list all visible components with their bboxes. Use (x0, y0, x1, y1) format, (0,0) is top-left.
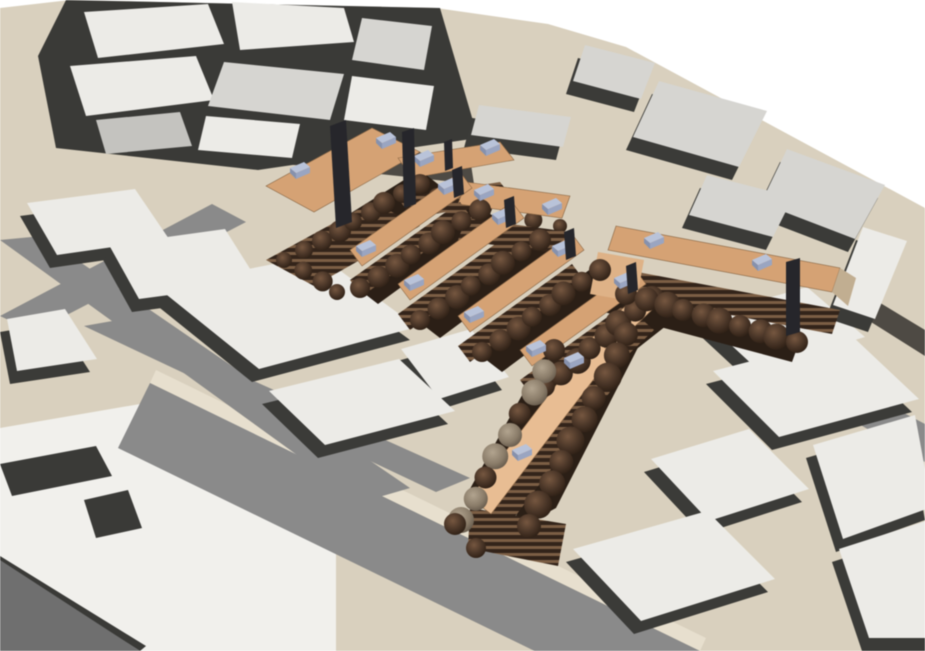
tree (522, 307, 542, 327)
tree (509, 403, 531, 425)
tree (312, 231, 332, 251)
tree (729, 315, 751, 337)
tree (410, 310, 430, 330)
tree (469, 199, 491, 221)
tree (482, 443, 508, 469)
stair-post-3 (786, 258, 800, 336)
tree (572, 272, 592, 292)
urban-massing-model (0, 0, 925, 651)
tree (491, 251, 515, 275)
tree (475, 467, 497, 489)
stair-post-5 (504, 196, 516, 228)
tree (464, 487, 488, 511)
rendering-canvas (0, 0, 925, 651)
cluster-roof-2 (232, 2, 354, 50)
tree (543, 339, 565, 361)
tree (589, 259, 611, 281)
tree (672, 299, 694, 321)
stair-post-7 (626, 262, 638, 294)
tree (466, 538, 486, 558)
stair-post-6 (564, 228, 576, 260)
tree (763, 324, 789, 350)
tree (522, 380, 548, 406)
tree (401, 245, 421, 265)
tree (511, 241, 531, 261)
tree (517, 514, 541, 538)
tree (444, 513, 466, 535)
tree (294, 262, 312, 280)
stair-post-8 (444, 139, 453, 171)
tree (313, 271, 333, 291)
tree (472, 342, 492, 362)
tree (551, 281, 575, 305)
tree (431, 220, 455, 244)
stair-post-2 (402, 128, 416, 208)
tree (498, 423, 522, 447)
tree (594, 363, 622, 391)
tree (295, 241, 313, 259)
tree (329, 284, 345, 300)
tree (451, 211, 471, 231)
tree (373, 192, 395, 214)
tree (529, 229, 551, 251)
tree (350, 278, 370, 298)
tree (461, 276, 481, 296)
tree (276, 252, 292, 268)
stair-post-4 (452, 166, 464, 198)
tree (706, 308, 732, 334)
